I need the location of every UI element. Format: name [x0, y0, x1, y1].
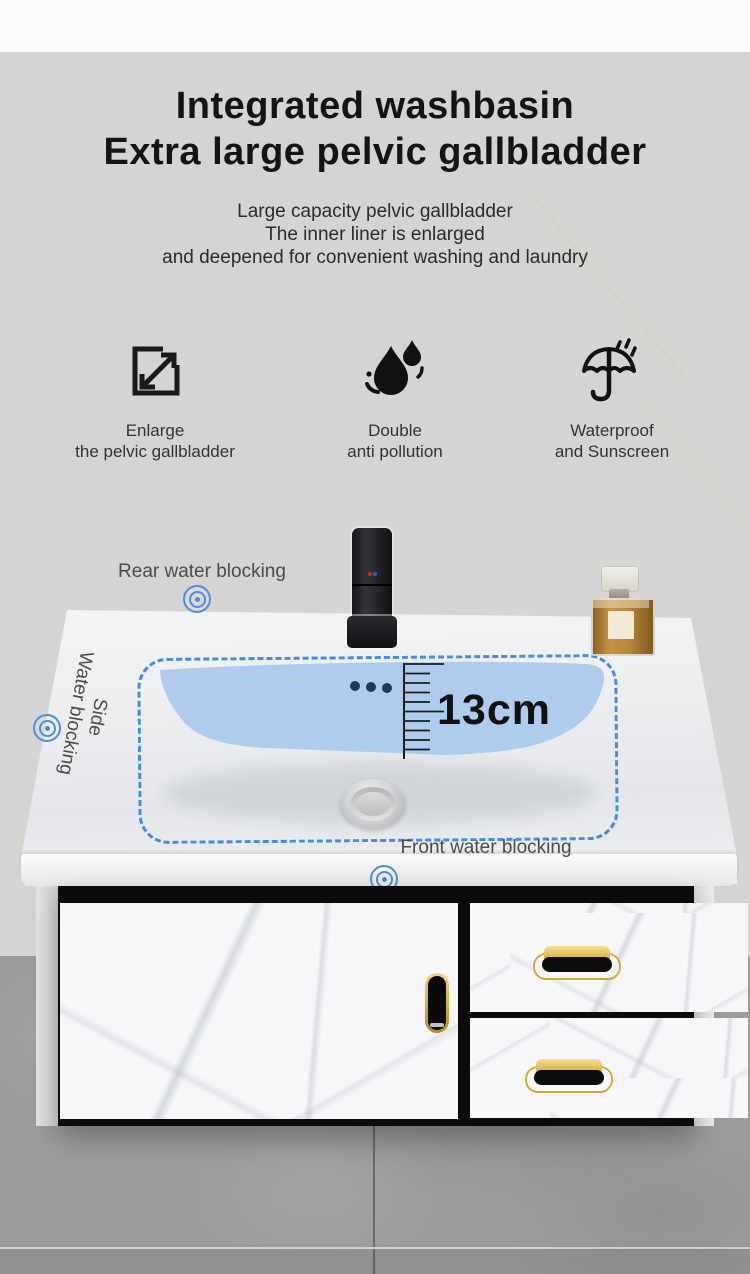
perfume-bottle-shoulder	[593, 600, 649, 608]
overflow-hole	[350, 681, 360, 691]
wall-bottom-strip	[0, 1249, 750, 1274]
feature-enlarge: Enlarge the pelvic gallbladder	[35, 336, 275, 462]
door-handle-inner	[428, 976, 446, 1030]
drawer-handle-bottom	[525, 1059, 613, 1091]
side-water-blocking-target	[33, 714, 61, 742]
faucet-base	[347, 616, 397, 648]
handle-bar	[534, 1070, 604, 1085]
target-dot	[45, 726, 50, 731]
front-water-blocking-label: Front water blocking	[396, 837, 576, 859]
drain-stopper	[341, 779, 405, 829]
overflow-hole	[366, 682, 376, 692]
target-ring	[39, 720, 56, 737]
feature-anti-pollution: Double anti pollution	[275, 336, 515, 462]
handle-bar	[542, 957, 612, 972]
drain-ring	[350, 787, 396, 821]
faucet-seam	[352, 584, 392, 586]
vanity-cabinet	[58, 886, 694, 1126]
feature-label-line1: Enlarge	[35, 420, 275, 441]
drain-cap	[356, 792, 390, 816]
faucet-hot-indicator	[368, 572, 372, 576]
expand-icon	[35, 336, 275, 406]
depth-measurement: 13cm	[437, 686, 547, 735]
faucet-cold-indicator	[373, 572, 377, 576]
drawer-handle-top	[533, 946, 621, 978]
umbrella-icon	[492, 336, 732, 406]
subtitle-line2: The inner liner is enlarged	[0, 224, 750, 246]
feature-label: Waterproof and Sunscreen	[492, 420, 732, 462]
product-page: Integrated washbasin Extra large pelvic …	[0, 0, 750, 1274]
feature-label-line2: the pelvic gallbladder	[35, 441, 275, 462]
door-handle-shine	[430, 1023, 444, 1027]
target-ring	[189, 591, 206, 608]
overflow-hole	[382, 683, 392, 693]
rear-water-blocking-target	[183, 585, 211, 613]
page-title-line1: Integrated washbasin	[0, 84, 750, 128]
cabinet-door-handle	[425, 973, 449, 1033]
rear-water-blocking-label: Rear water blocking	[112, 561, 292, 583]
subtitle-line1: Large capacity pelvic gallbladder	[0, 201, 750, 223]
cabinet-door	[60, 903, 458, 1119]
perfume-bottle-label	[608, 611, 634, 639]
feature-label-line2: and Sunscreen	[492, 441, 732, 462]
feature-label: Double anti pollution	[275, 420, 515, 462]
feature-label-line2: anti pollution	[275, 441, 515, 462]
target-ring	[376, 871, 393, 888]
target-dot	[382, 877, 387, 882]
feature-label-line1: Waterproof	[492, 420, 732, 441]
water-drops-icon	[275, 336, 515, 406]
feature-label-line1: Double	[275, 420, 515, 441]
page-title-line2: Extra large pelvic gallbladder	[0, 130, 750, 174]
faucet	[352, 528, 392, 628]
feature-label: Enlarge the pelvic gallbladder	[35, 420, 275, 462]
target-dot	[195, 597, 200, 602]
top-white-band	[0, 0, 750, 52]
perfume-bottle	[591, 598, 655, 656]
subtitle-line3: and deepened for convenient washing and …	[0, 247, 750, 269]
feature-waterproof: Waterproof and Sunscreen	[492, 336, 732, 462]
basin-water-highlight	[146, 658, 626, 768]
cabinet-side-panel-left	[36, 886, 60, 1126]
